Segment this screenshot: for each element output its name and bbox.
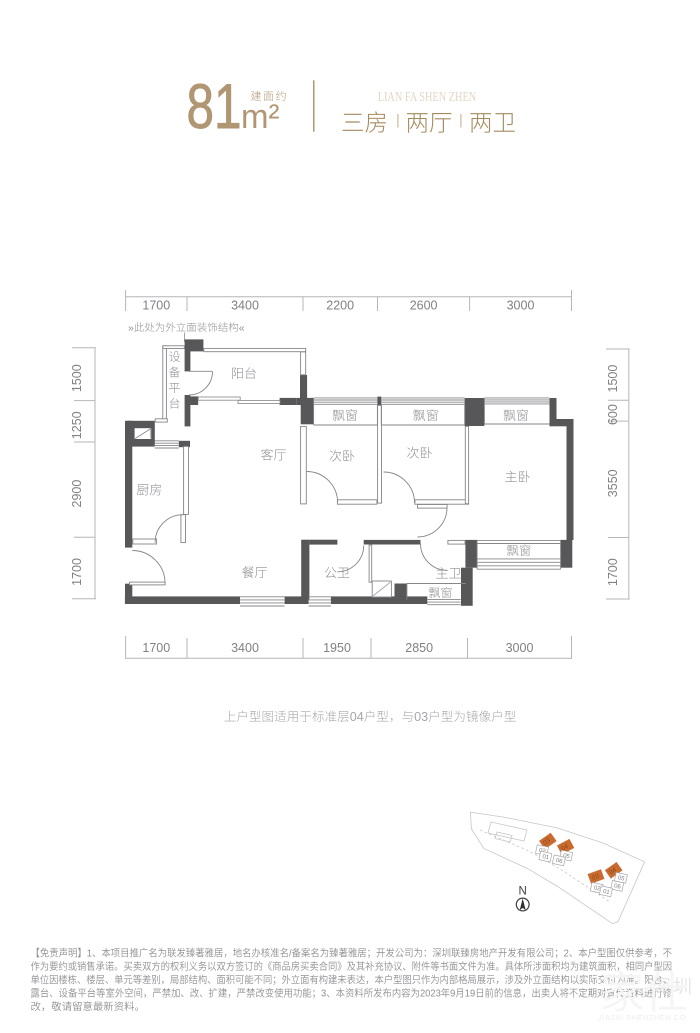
svg-text:m²: m² [241, 98, 280, 136]
svg-text:1: 1 [87, 948, 93, 960]
svg-text:2900: 2900 [70, 480, 84, 508]
svg-text:3400: 3400 [231, 299, 259, 313]
svg-text:04: 04 [350, 710, 364, 724]
svg-text:2600: 2600 [410, 299, 438, 313]
svg-text:2: 2 [564, 948, 569, 960]
svg-text:LIAN FA SHEN ZHEN: LIAN FA SHEN ZHEN [378, 89, 477, 104]
svg-text:3000: 3000 [507, 299, 535, 313]
svg-text:2850: 2850 [405, 641, 433, 655]
svg-text:1700: 1700 [142, 641, 170, 655]
svg-text:»: » [128, 322, 134, 334]
svg-text:81: 81 [187, 72, 242, 142]
svg-text:600: 600 [606, 404, 620, 425]
svg-text:1500: 1500 [606, 365, 620, 393]
svg-text:3: 3 [321, 988, 327, 1000]
svg-text:1250: 1250 [70, 411, 84, 439]
svg-text:3400: 3400 [231, 641, 259, 655]
svg-text:1700: 1700 [606, 558, 620, 586]
svg-text:«: « [239, 322, 245, 334]
svg-text:2200: 2200 [326, 299, 354, 313]
svg-text:3550: 3550 [606, 469, 620, 497]
svg-text:19: 19 [465, 988, 476, 1000]
svg-text:1700: 1700 [142, 299, 170, 313]
svg-text:9: 9 [450, 988, 456, 1000]
svg-text:1950: 1950 [323, 641, 351, 655]
svg-text:N: N [519, 886, 527, 898]
svg-text:03: 03 [414, 710, 428, 724]
svg-text:1700: 1700 [70, 558, 84, 586]
svg-text:3000: 3000 [506, 641, 534, 655]
svg-text:1500: 1500 [70, 364, 84, 392]
svg-text:2023: 2023 [420, 988, 441, 1000]
svg-text:/: / [289, 948, 292, 960]
svg-text:JIAZAI SHENZHEN CO: JIAZAI SHENZHEN CO [598, 1013, 686, 1022]
